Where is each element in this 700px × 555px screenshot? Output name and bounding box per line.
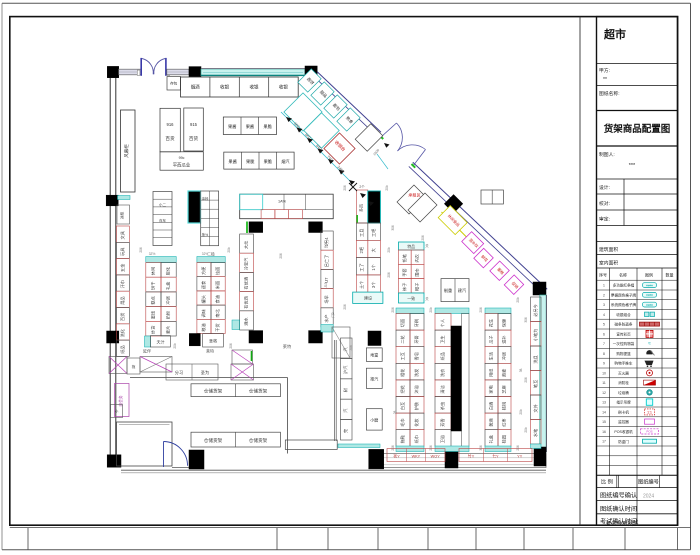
svg-text:20b: 20b [387,247,391,253]
svg-text:百货: 百货 [165,135,175,142]
svg-text:收银: 收银 [220,84,229,91]
svg-text:室内面积: 室内面积 [599,260,618,267]
svg-text:涂栓: 涂栓 [202,196,209,201]
svg-text:小二: 小二 [159,202,167,207]
svg-text:洗化: 洗化 [119,328,126,337]
svg-text:考试确认时间: 考试确认时间 [600,518,637,526]
svg-text:206: 206 [524,377,528,383]
svg-text:圣为: 圣为 [201,369,209,376]
svg-text:袜子: 袜子 [401,283,408,291]
svg-text:纸品: 纸品 [119,345,126,353]
svg-text:风幕柜: 风幕柜 [123,144,130,158]
svg-text:饼干: 饼干 [149,282,156,290]
svg-text:票据颜色格子牌: 票据颜色格子牌 [611,292,637,297]
svg-text:20b: 20b [429,307,433,313]
svg-text:红枣: 红枣 [501,418,508,427]
svg-text:汗巾: 汗巾 [119,280,126,288]
svg-text:膨化: 膨化 [165,266,172,275]
svg-text:冰柜: 冰柜 [120,212,125,220]
svg-text:20b: 20b [524,427,528,433]
svg-text:地富: 地富 [370,352,378,358]
svg-text:二花: 二花 [399,335,406,343]
svg-text:1A%: 1A% [278,200,287,204]
svg-text:206: 206 [279,253,283,259]
svg-text:306: 306 [524,317,528,323]
svg-text:花生: 花生 [488,319,495,327]
svg-text:WOY: WOY [431,455,441,459]
svg-text:冲调: 冲调 [165,296,172,304]
svg-text:916: 916 [167,122,175,127]
svg-text:牙刷: 牙刷 [413,319,420,327]
svg-text:仓储货架: 仓储货架 [204,437,223,444]
svg-text:冲调: 冲调 [501,352,508,360]
svg-text:收银组合: 收银组合 [616,312,631,317]
svg-text:购物提篮: 购物提篮 [616,351,631,356]
svg-text:图例: 图例 [645,272,653,278]
svg-text:白酒: 白酒 [488,402,495,410]
svg-text:莱特: 莱特 [283,343,291,350]
svg-text:速食: 速食 [200,280,207,289]
svg-text:个人: 个人 [440,318,445,327]
svg-text:图纸编号确认: 图纸编号确认 [600,492,637,500]
svg-text:香皂: 香皂 [413,352,420,360]
svg-text:比 例: 比 例 [601,478,613,486]
svg-text:果酱: 果酱 [228,123,236,130]
svg-text:冷宝汽: 冷宝汽 [243,257,250,270]
svg-text:15: 15 [602,420,606,424]
svg-text:莱特: 莱特 [206,348,214,354]
svg-text:206: 206 [139,247,143,253]
svg-text:小: 小 [115,409,119,414]
svg-text:礼盒: 礼盒 [488,434,495,443]
svg-text:粮油: 粮油 [200,323,207,331]
svg-text:U7: U7 [324,277,329,283]
svg-text:***: *** [629,163,636,169]
svg-text:拖鞋: 拖鞋 [399,434,406,443]
svg-text:####: #### [646,303,653,307]
svg-text:系统颜色格子牌: 系统颜色格子牌 [611,302,637,307]
svg-text:手套: 手套 [401,268,408,277]
svg-text:相花: 相花 [399,369,406,377]
svg-text:麦片: 麦片 [165,326,172,334]
svg-text:百货: 百货 [189,135,199,142]
svg-text:一次性购物袋: 一次性购物袋 [613,341,635,346]
svg-text:20b: 20b [173,343,177,349]
svg-text:水产: 水产 [323,314,330,322]
svg-text:指示吊牌: 指示吊牌 [616,400,631,405]
svg-text:化妆: 化妆 [413,418,420,427]
svg-text:食油: 食油 [214,295,221,303]
svg-text:有优酒: 有优酒 [243,277,250,290]
svg-text:文外: 文外 [532,403,539,412]
svg-text:沐浴: 沐浴 [413,384,420,393]
svg-text:小笔为: 小笔为 [532,329,539,342]
svg-text:有优西: 有优西 [243,296,250,309]
svg-text:纸品: 纸品 [439,352,446,360]
svg-text:仓储货架: 仓储货架 [204,388,223,395]
svg-text:序号: 序号 [599,272,607,278]
svg-text:32%: 32% [202,252,209,256]
svg-text:设计:: 设计: [599,184,610,191]
svg-text:YY: YY [517,455,523,459]
svg-text:2吧: 2吧 [359,246,364,253]
svg-text:烟汽: 烟汽 [281,158,290,165]
svg-text:审定:: 审定: [599,216,610,223]
svg-text:工且: 工且 [359,229,364,237]
svg-text:礼盒: 礼盒 [165,281,172,290]
svg-text:垃圾桶: 垃圾桶 [618,390,629,395]
svg-text:生活: 生活 [488,352,495,360]
svg-text:瓜子: 瓜子 [488,335,494,343]
svg-text:杀虫: 杀虫 [439,402,446,410]
svg-text:206: 206 [343,185,347,191]
svg-text:99c: 99c [179,156,185,160]
svg-text:9: 9 [603,362,605,366]
svg-text:收银: 收银 [250,84,259,91]
svg-text:3: 3 [603,303,605,307]
svg-text:护肤: 护肤 [413,401,420,410]
svg-text:水笔: 水笔 [532,429,538,437]
svg-text:206: 206 [349,345,353,351]
svg-text:17: 17 [602,440,606,444]
svg-text:门2: 门2 [330,312,335,317]
svg-text:28.: 28. [393,410,397,415]
svg-text:206: 206 [421,235,425,241]
svg-text:天汁: 天汁 [157,339,165,345]
svg-text:拖: 拖 [132,364,136,369]
svg-text:≈: ≈ [648,341,651,347]
svg-text:多功能红条幅: 多功能红条幅 [613,283,635,288]
svg-text:POS收银机: POS收银机 [614,429,633,434]
svg-text:挂面: 挂面 [214,267,221,275]
svg-text:蜜饯: 蜜饯 [149,311,156,319]
svg-text:洗且: 洗且 [532,355,539,363]
svg-text:6: 6 [603,332,605,336]
svg-text:4: 4 [603,313,605,317]
svg-text:果酱: 果酱 [228,158,236,165]
svg-text:306: 306 [479,445,483,451]
svg-text:12: 12 [602,391,606,395]
svg-text:14: 14 [602,410,606,414]
svg-text:206: 206 [343,304,347,310]
svg-text:制图人:: 制图人: [599,151,615,158]
svg-text:承租区: 承租区 [408,192,421,199]
svg-text:消防栓: 消防栓 [618,380,629,385]
svg-text:牙膏: 牙膏 [413,335,420,343]
svg-text:小磨: 小磨 [370,417,378,423]
svg-text:校对:: 校对: [599,200,610,207]
svg-text:POS: POS [646,430,652,434]
svg-text:平西瓜业: 平西瓜业 [173,162,191,169]
svg-text:图纸编号: 图纸编号 [638,478,659,486]
svg-text:罐头: 罐头 [200,295,207,303]
svg-text:磁条防盗条: 磁条防盗条 [615,322,633,327]
svg-text:沪汽: 沪汽 [342,365,349,374]
svg-text:甲方:: 甲方: [599,67,610,74]
svg-text:20b: 20b [227,247,231,253]
svg-text:建设: 建设 [364,295,372,301]
svg-text:烟酒: 烟酒 [191,84,200,91]
svg-text:酒水: 酒水 [243,317,250,326]
svg-text:建汽: 建汽 [458,287,467,294]
svg-text:米面: 米面 [214,281,221,289]
svg-text:工了: 工了 [358,263,364,271]
svg-text:13: 13 [602,401,606,405]
svg-text:数量: 数量 [666,272,674,278]
svg-text:名称: 名称 [619,272,627,278]
svg-text:WKY: WKY [412,455,421,459]
svg-text:内衣: 内衣 [414,253,421,262]
svg-text:分习: 分习 [175,369,183,376]
svg-text:纸巾: 纸巾 [413,435,420,443]
svg-text:####: #### [646,283,653,287]
svg-text:百货: 百货 [119,313,126,321]
svg-text:果酱: 果酱 [246,123,254,130]
svg-text:五金: 五金 [119,263,125,272]
svg-text:工互: 工互 [400,352,405,360]
svg-text:方便: 方便 [200,266,207,275]
svg-text:10: 10 [602,371,606,375]
svg-text:大灶: 大灶 [243,241,250,249]
svg-text:206: 206 [391,445,395,451]
svg-text:1个: 1个 [371,263,376,270]
svg-text:2024: 2024 [643,494,654,500]
svg-text:糕点: 糕点 [149,296,156,304]
svg-text:状Y: 状Y [393,454,400,459]
svg-text:206: 206 [516,445,520,451]
svg-text:清洁: 清洁 [439,385,446,393]
svg-text:防盗门: 防盗门 [618,439,629,444]
svg-text:货架商品配置图: 货架商品配置图 [603,123,671,135]
svg-text:宣传彩页: 宣传彩页 [616,332,631,337]
svg-text:大: 大 [370,248,377,252]
svg-text:保健: 保健 [501,318,508,327]
svg-text:条%: 条% [202,232,208,237]
svg-text:桂圆: 桂圆 [501,435,508,443]
svg-text:果脆: 果脆 [263,123,272,130]
svg-text:监控器: 监控器 [618,419,629,424]
svg-text:竹Y: 竹Y [468,454,475,459]
svg-text:用纸: 用纸 [488,368,495,377]
svg-text:把花: 把花 [399,385,406,393]
svg-text:比04: 比04 [323,241,328,248]
svg-text:土个: 土个 [358,280,364,289]
svg-text:工吧: 工吧 [371,228,376,237]
svg-text:206: 206 [229,343,233,349]
svg-text:20b: 20b [519,409,523,415]
svg-text:2: 2 [603,293,605,297]
svg-text:延伴: 延伴 [143,348,151,354]
svg-text:果脆: 果脆 [264,158,273,165]
svg-text:20b: 20b [385,185,389,191]
svg-text:特品: 特品 [407,243,415,249]
svg-text:制重: 制重 [444,287,452,294]
svg-text:8: 8 [603,352,605,356]
svg-text:**: ** [603,77,607,83]
svg-text:笔互: 笔互 [532,380,538,388]
svg-text:家电: 家电 [488,384,494,393]
svg-text:超市: 超市 [603,27,626,41]
svg-text:38.: 38. [519,368,523,373]
svg-text:1:1: 1:1 [647,410,652,414]
svg-text:二极: 二极 [207,252,215,257]
svg-text:J13: J13 [324,282,328,287]
svg-text:铅笔: 铅笔 [401,254,408,262]
svg-text:206: 206 [429,445,433,451]
svg-text:7: 7 [603,342,605,346]
svg-text:休闲: 休闲 [149,267,156,275]
svg-text:炒货: 炒货 [149,326,156,334]
svg-text:306: 306 [391,225,395,231]
svg-text:围巾: 围巾 [414,268,421,276]
svg-text:核桃: 核桃 [501,401,508,410]
svg-text:图纸名称:: 图纸名称: [599,90,620,97]
svg-text:购物手推车: 购物手推车 [615,361,633,366]
svg-text:芳香: 芳香 [439,418,446,427]
svg-text:图纸确认时间: 图纸确认时间 [600,505,637,513]
svg-text:调味: 调味 [200,308,207,317]
svg-text:洗衣: 洗衣 [439,368,446,377]
svg-text:推汽: 推汽 [370,376,378,382]
svg-text:3个: 3个 [371,281,376,288]
svg-text:灭火器: 灭火器 [618,371,629,376]
svg-text:刷卡机: 刷卡机 [618,410,629,415]
svg-text:915: 915 [190,122,198,127]
svg-text:场早: 场早 [323,295,330,303]
svg-text:干货: 干货 [214,323,221,331]
svg-text:切面: 切面 [399,319,406,327]
svg-text:仓储货架: 仓储货架 [249,437,268,444]
svg-text:帽子: 帽子 [414,283,421,291]
svg-text:连车: 连车 [159,218,167,223]
svg-text:存包: 存包 [170,81,178,86]
svg-text:燕麦: 燕麦 [501,368,508,377]
svg-text:吕亡了: 吕亡了 [323,255,330,268]
svg-text:16: 16 [602,430,606,434]
svg-text:果脆: 果脆 [246,158,255,165]
svg-text:芝麻: 芝麻 [501,384,508,393]
svg-text:滋补: 滋补 [501,335,508,344]
svg-text:完: 完 [342,429,349,433]
svg-text:1: 1 [603,284,605,288]
svg-text:收银: 收银 [279,84,288,91]
svg-text:毛巾: 毛巾 [399,418,406,426]
svg-text:文具: 文具 [119,230,126,239]
svg-text:206: 206 [391,307,395,313]
svg-text:多吕: 多吕 [358,204,364,212]
svg-text:2个: 2个 [359,184,365,189]
svg-text:洗发: 洗发 [413,368,420,377]
svg-text:3Z%: 3Z% [149,252,156,256]
svg-text:5: 5 [603,323,605,327]
svg-text:仓储货架: 仓储货架 [249,388,268,395]
svg-text:必另今: 必另今 [532,303,539,316]
svg-text:南北: 南北 [214,308,221,317]
svg-text:11: 11 [602,381,606,385]
svg-text:建筑面积: 建筑面积 [599,246,618,253]
svg-text:20b: 20b [516,297,520,303]
svg-text:奶粉: 奶粉 [165,310,172,319]
svg-text:206: 206 [479,307,483,313]
svg-text:206: 206 [387,272,391,278]
svg-text:卫浴: 卫浴 [439,434,446,443]
svg-text:一致: 一致 [407,295,415,301]
svg-text:七Y: 七Y [492,454,499,459]
svg-text:白互: 白互 [399,402,406,410]
svg-text:树: 树 [342,388,349,392]
svg-text:黄酒: 黄酒 [488,418,495,426]
svg-text:卫生: 卫生 [439,335,445,343]
svg-text:####: #### [646,293,653,297]
svg-text:圣将: 圣将 [209,338,217,344]
